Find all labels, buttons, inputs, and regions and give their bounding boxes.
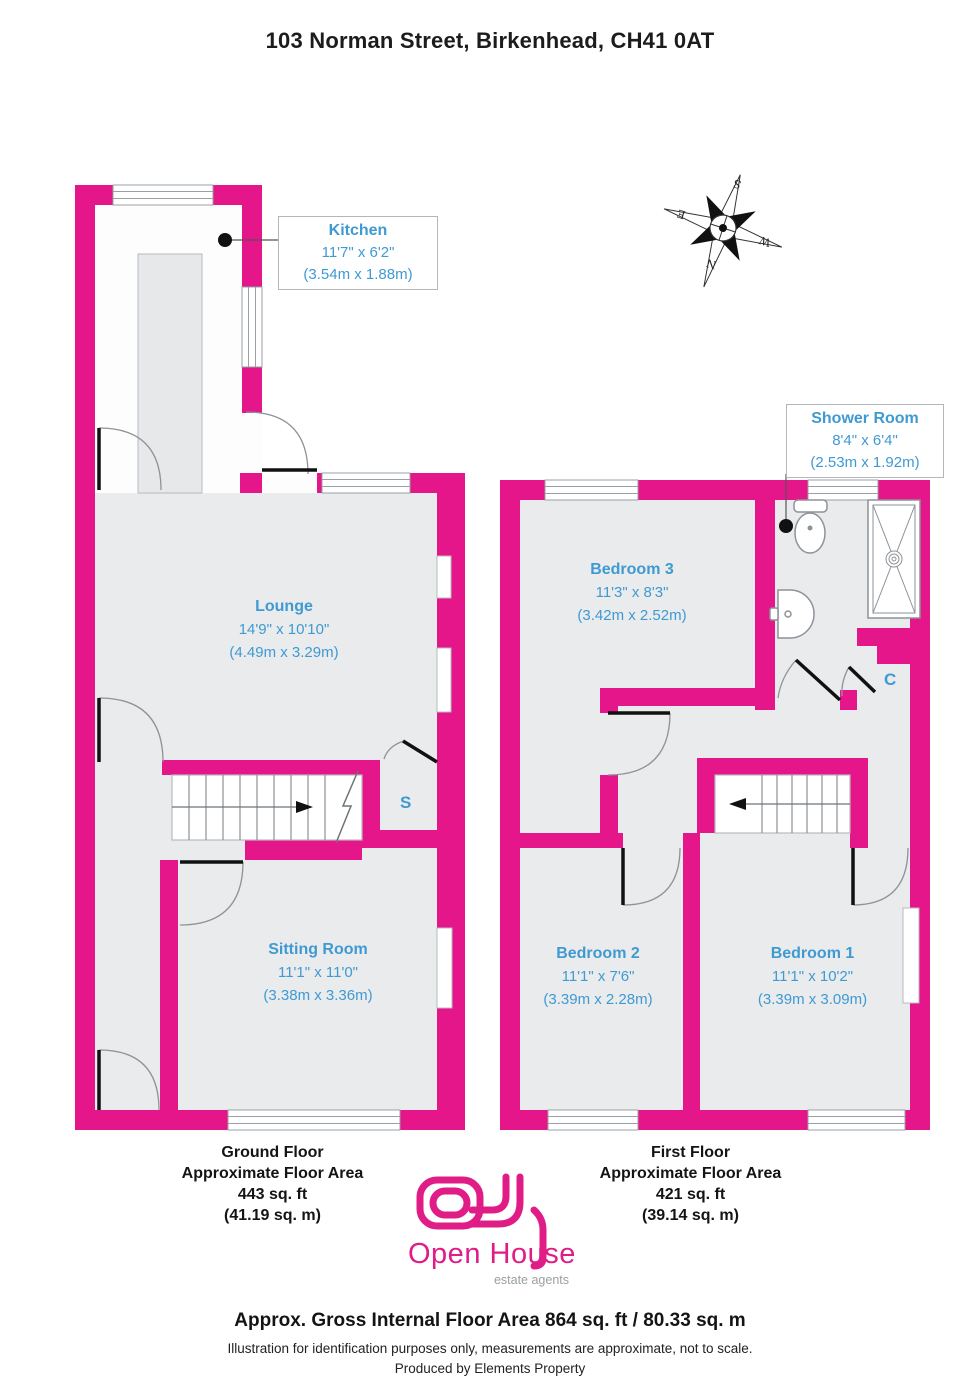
lounge-label: Lounge 14'9" x 10'10" (4.49m x 3.29m): [164, 595, 404, 664]
bedroom3-label: Bedroom 3 11'3" x 8'3" (3.42m x 2.52m): [512, 558, 752, 627]
kitchen-metric: (3.54m x 1.88m): [287, 264, 429, 286]
gross-area-text: Approx. Gross Internal Floor Area 864 sq…: [0, 1310, 980, 1332]
shower-room-name: Shower Room: [795, 408, 935, 430]
logo-brand-text: Open House: [408, 1238, 583, 1271]
open-house-logo: Open House estate agents: [408, 1170, 583, 1287]
stairs-cupboard-label: S: [400, 793, 411, 813]
ground-stairs: [172, 771, 362, 843]
kitchen-imperial: 11'7" x 6'2": [287, 242, 429, 264]
floorplan-page: 103 Norman Street, Birkenhead, CH41 0AT: [0, 0, 980, 1387]
shower-icon: [868, 500, 920, 618]
first-floor-caption: First Floor Approximate Floor Area 421 s…: [538, 1142, 843, 1226]
shower-room-metric: (2.53m x 1.92m): [795, 452, 935, 474]
sitting-room-label: Sitting Room 11'1" x 11'0" (3.38m x 3.36…: [198, 938, 438, 1007]
shower-room-callout: Shower Room 8'4" x 6'4" (2.53m x 1.92m): [786, 404, 944, 478]
compass-rose: N S E W: [645, 156, 799, 307]
compass-w: W: [757, 233, 772, 249]
kitchen-unit-block: [138, 254, 202, 493]
kitchen-callout: Kitchen 11'7" x 6'2" (3.54m x 1.88m): [278, 216, 438, 290]
logo-tagline: estate agents: [408, 1273, 583, 1287]
shower-room-imperial: 8'4" x 6'4": [795, 430, 935, 452]
bedroom1-label: Bedroom 1 11'1" x 10'2" (3.39m x 3.09m): [690, 942, 935, 1011]
produced-by-text: Produced by Elements Property: [0, 1361, 980, 1376]
kitchen-name: Kitchen: [287, 220, 429, 242]
bedroom2-label: Bedroom 2 11'1" x 7'6" (3.39m x 2.28m): [478, 942, 718, 1011]
disclaimer-text: Illustration for identification purposes…: [0, 1341, 980, 1356]
first-stairs: [715, 775, 850, 833]
ground-floor-caption: Ground Floor Approximate Floor Area 443 …: [120, 1142, 425, 1226]
compass-s: S: [732, 176, 743, 191]
closet-label: C: [884, 670, 896, 690]
toilet-icon: [794, 500, 827, 553]
